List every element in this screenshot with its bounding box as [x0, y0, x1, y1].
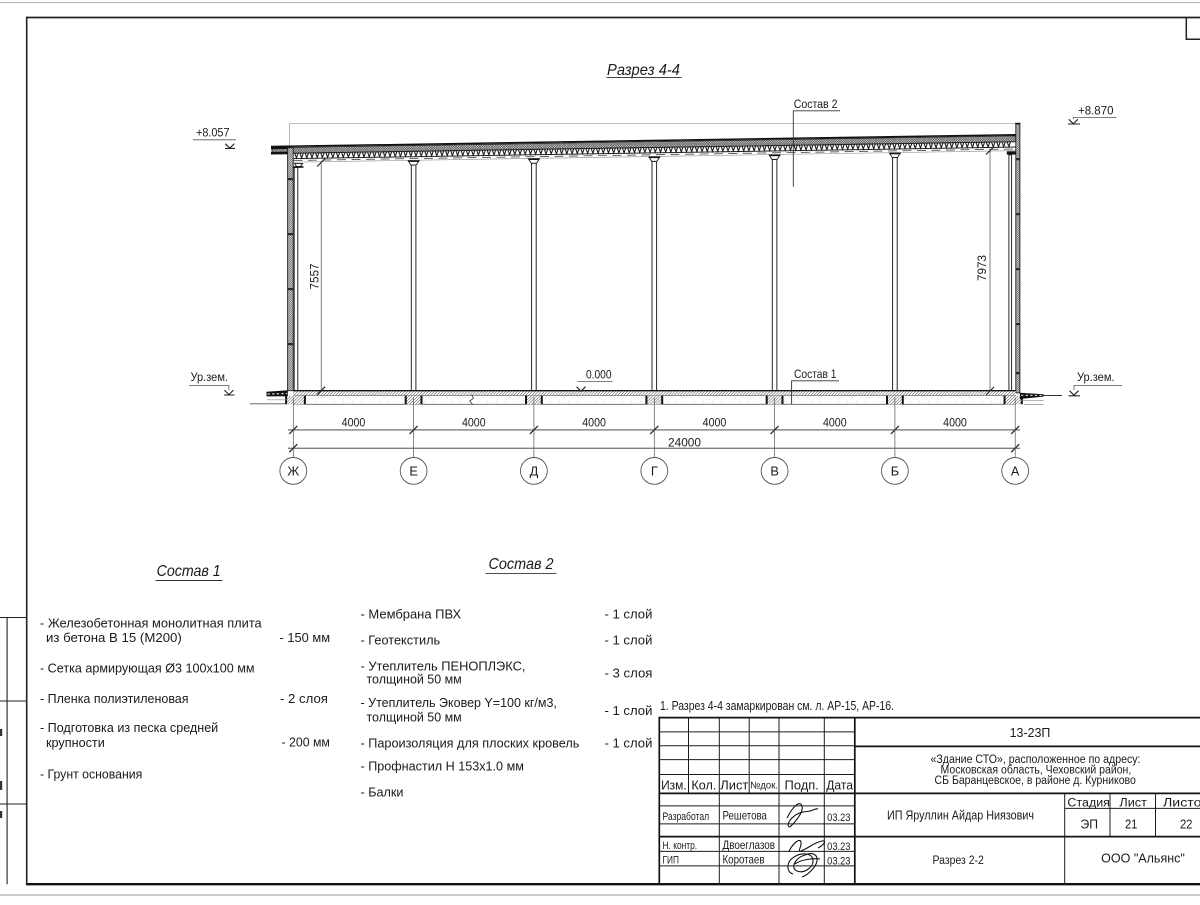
svg-text:Ур.зем.: Ур.зем.: [191, 371, 229, 384]
svg-text:- Железобетонная монолитная п: - Железобетонная монолитная плита: [40, 617, 262, 631]
svg-text:7973: 7973: [975, 255, 989, 281]
svg-text:Е: Е: [409, 464, 418, 479]
svg-text:Решетова: Решетова: [723, 809, 768, 823]
svg-text:Коротаев: Коротаев: [723, 853, 765, 867]
svg-text:03.23: 03.23: [827, 812, 850, 824]
svg-text:- Балки: - Балки: [361, 785, 404, 799]
svg-text:Стадия: Стадия: [1067, 798, 1110, 810]
svg-text:Разрез 4-4: Разрез 4-4: [607, 62, 680, 79]
svg-text:Разрез 2-2: Разрез 2-2: [933, 855, 984, 867]
svg-text:Б: Б: [891, 464, 899, 479]
svg-text:03.23: 03.23: [827, 855, 850, 867]
svg-text:Ж: Ж: [287, 464, 299, 479]
svg-text:Г: Г: [651, 464, 658, 479]
svg-text:- Сетка армирующая Ø3 100х100: - Сетка армирующая Ø3 100х100 мм: [40, 662, 255, 676]
svg-text:21: 21: [1125, 817, 1138, 832]
svg-text:Д: Д: [530, 464, 539, 479]
svg-text:- Утеплитель Эковер Y=100 кг/м: - Утеплитель Эковер Y=100 кг/м3,: [361, 696, 557, 710]
svg-text:Состав 1: Состав 1: [157, 563, 221, 580]
svg-text:Листов: Листов: [1163, 798, 1200, 810]
svg-text:- 1 слой: - 1 слой: [605, 704, 653, 718]
svg-text:- Геотекстиль: - Геотекстиль: [361, 634, 441, 648]
svg-text:Дата: Дата: [826, 777, 853, 792]
svg-text:4000: 4000: [703, 418, 727, 430]
svg-text:4000: 4000: [462, 418, 486, 430]
svg-text:ЭП: ЭП: [1081, 817, 1099, 832]
svg-text:Изм.: Изм.: [661, 777, 687, 792]
svg-text:- 1 слой: - 1 слой: [605, 736, 653, 750]
svg-text:7557: 7557: [308, 263, 322, 289]
svg-text:- 1 слой: - 1 слой: [605, 608, 653, 622]
svg-text:- 150 мм: - 150 мм: [280, 631, 331, 645]
svg-text:крупности: крупности: [46, 736, 105, 750]
svg-text:- Утеплитель ПЕНОПЛЭКС,: - Утеплитель ПЕНОПЛЭКС,: [361, 660, 526, 674]
svg-text:из бетона В 15 (М200): из бетона В 15 (М200): [46, 631, 182, 645]
svg-text:ИП Яруллин Айдар Ниязович: ИП Яруллин Айдар Ниязович: [887, 809, 1034, 823]
svg-text:+8.057: +8.057: [196, 125, 230, 139]
svg-text:13-23П: 13-23П: [1010, 725, 1051, 740]
svg-text:Подп.: Подп.: [785, 777, 819, 792]
svg-text:Разработал: Разработал: [663, 811, 710, 823]
svg-text:№док.: №док.: [750, 780, 778, 791]
svg-text:4000: 4000: [823, 418, 847, 430]
svg-text:толщиной 50 мм: толщиной 50 мм: [367, 711, 462, 725]
svg-text:Ур.зем.: Ур.зем.: [1077, 371, 1115, 384]
svg-text:Н. контр.: Н. контр.: [663, 840, 698, 852]
svg-text:Кол.: Кол.: [691, 777, 716, 792]
svg-text:В: В: [770, 464, 779, 479]
svg-text:24000: 24000: [668, 438, 701, 450]
svg-text:03.23: 03.23: [827, 841, 850, 853]
svg-text:1. Разрез 4-4 замаркирован см.: 1. Разрез 4-4 замаркирован см. л. АР-15,…: [660, 699, 894, 713]
svg-text:толщиной 50 мм: толщиной 50 мм: [367, 673, 462, 687]
svg-text:- Мембрана ПВХ: - Мембрана ПВХ: [361, 608, 462, 622]
svg-text:Лист: Лист: [720, 777, 748, 792]
svg-text:+8.870: +8.870: [1078, 103, 1114, 117]
svg-text:Состав 2: Состав 2: [489, 556, 554, 573]
svg-text:А: А: [1011, 464, 1020, 479]
svg-text:ООО "Альянс": ООО "Альянс": [1101, 851, 1185, 866]
svg-text:- Пленка полиэтиленовая: - Пленка полиэтиленовая: [40, 692, 189, 706]
svg-text:- Пароизоляция для плоских кро: - Пароизоляция для плоских кровель: [361, 736, 580, 750]
svg-text:- Профнастил Н 153х1.0 мм: - Профнастил Н 153х1.0 мм: [361, 760, 524, 774]
svg-text:22: 22: [1180, 817, 1193, 832]
svg-text:- Подготовка из песка средней: - Подготовка из песка средней: [40, 721, 218, 735]
svg-text:Состав 1: Состав 1: [794, 367, 837, 381]
svg-text:- 3 слоя: - 3 слоя: [605, 667, 653, 681]
svg-text:- Грунт основания: - Грунт основания: [40, 768, 142, 782]
svg-text:СБ Баранцевское, в районе д. К: СБ Баранцевское, в районе д. Курниково: [935, 775, 1136, 787]
svg-text:Двоеглазов: Двоеглазов: [723, 838, 776, 852]
svg-text:0.000: 0.000: [586, 368, 612, 382]
svg-text:Состав 2: Состав 2: [794, 97, 838, 111]
svg-text:- 1 слой: - 1 слой: [605, 634, 653, 648]
svg-text:ГИП: ГИП: [663, 854, 679, 866]
svg-text:Лист: Лист: [1119, 798, 1147, 810]
svg-text:4000: 4000: [342, 418, 366, 430]
svg-text:4000: 4000: [943, 418, 967, 430]
svg-text:4000: 4000: [582, 418, 606, 430]
svg-text:- 2 слоя: - 2 слоя: [280, 692, 328, 706]
svg-text:- 200 мм: - 200 мм: [282, 736, 330, 750]
